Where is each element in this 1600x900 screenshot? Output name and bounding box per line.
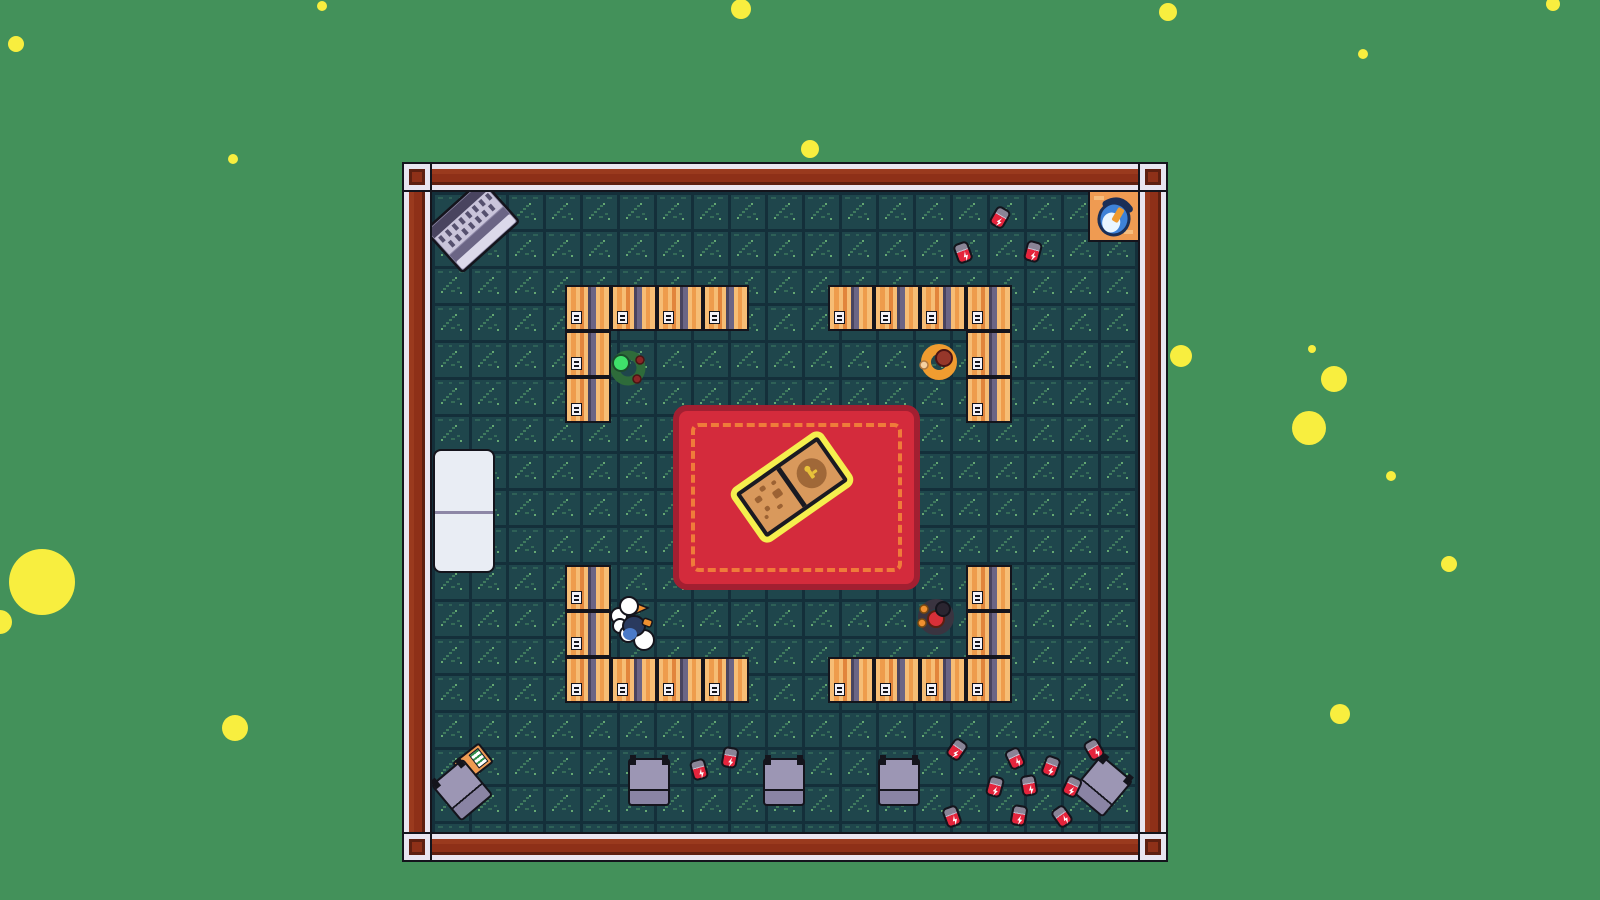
cabinet-divider: [435, 511, 493, 514]
corner-top-left: [402, 162, 432, 192]
white-cabinet[interactable]: [433, 449, 495, 573]
desk-drawer-handle: [571, 591, 582, 604]
desk-drawer-handle: [571, 403, 582, 416]
orange-creature-character[interactable]: [915, 336, 963, 388]
desk[interactable]: [565, 657, 611, 703]
shadow-creature-character[interactable]: [911, 590, 961, 644]
firefly-particle: [1159, 3, 1177, 21]
desk[interactable]: [966, 611, 1012, 657]
desk[interactable]: [703, 285, 749, 331]
desk[interactable]: [657, 285, 703, 331]
desk[interactable]: [966, 565, 1012, 611]
desk-drawer-handle: [709, 311, 720, 324]
corner-bottom-left: [402, 832, 432, 862]
chair[interactable]: [763, 758, 805, 806]
firefly-particle: [8, 36, 24, 52]
desk-drawer-handle: [617, 311, 628, 324]
desk-drawer-handle: [972, 357, 983, 370]
corner-bottom-right: [1138, 832, 1168, 862]
lightning-bolt-icon: [1046, 765, 1056, 777]
firefly-particle: [0, 610, 12, 634]
desk[interactable]: [920, 657, 966, 703]
firefly-particle: [317, 1, 327, 11]
desk[interactable]: [565, 285, 611, 331]
desk-drawer-handle: [571, 311, 582, 324]
desk[interactable]: [611, 657, 657, 703]
firefly-particle: [731, 0, 751, 19]
desk-drawer-handle: [972, 403, 983, 416]
firefly-particle: [1292, 411, 1326, 445]
firefly-particle: [222, 715, 248, 741]
desk-drawer-handle: [571, 637, 582, 650]
desk-drawer-handle: [880, 683, 891, 696]
desk-drawer-handle: [571, 357, 582, 370]
firefly-particle: [1330, 704, 1350, 724]
lightning-bolt-icon: [1092, 747, 1103, 759]
desk[interactable]: [966, 285, 1012, 331]
booklet-label: [469, 748, 489, 769]
desk-drawer-handle: [617, 683, 628, 696]
lightning-bolt-icon: [1029, 250, 1038, 261]
desk[interactable]: [565, 565, 611, 611]
desk[interactable]: [828, 285, 874, 331]
desk-drawer-handle: [663, 311, 674, 324]
desk-drawer-handle: [880, 311, 891, 324]
firefly-particle: [1308, 345, 1316, 353]
desk[interactable]: [966, 657, 1012, 703]
soda-can[interactable]: [1019, 774, 1038, 797]
desk-drawer-handle: [926, 683, 937, 696]
game-stage: [0, 0, 1600, 900]
desk[interactable]: [565, 611, 611, 657]
firefly-particle: [1321, 366, 1347, 392]
firefly-particle: [1441, 556, 1457, 572]
green-creature-character[interactable]: [604, 342, 652, 394]
firefly-particle: [801, 140, 819, 158]
desk[interactable]: [565, 377, 611, 423]
desk[interactable]: [657, 657, 703, 703]
desk-drawer-handle: [972, 311, 983, 324]
desk-drawer-handle: [663, 683, 674, 696]
wall-top: [432, 162, 1138, 192]
desk-drawer-handle: [709, 683, 720, 696]
lightning-bolt-icon: [961, 250, 971, 262]
lightning-bolt-icon: [991, 785, 1000, 796]
wall-right: [1138, 192, 1168, 832]
firefly-particle: [1386, 471, 1396, 481]
lightning-bolt-icon: [1066, 785, 1077, 797]
lightning-bolt-icon: [994, 216, 1005, 228]
desk[interactable]: [703, 657, 749, 703]
lightning-bolt-icon: [726, 757, 735, 768]
lightning-bolt-icon: [1060, 813, 1071, 825]
desk[interactable]: [828, 657, 874, 703]
desk[interactable]: [565, 331, 611, 377]
lightning-bolt-icon: [697, 768, 706, 779]
firefly-particle: [1170, 345, 1192, 367]
desk-drawer-handle: [834, 311, 845, 324]
desk-drawer-handle: [972, 591, 983, 604]
piano[interactable]: [425, 182, 525, 282]
desk-drawer-handle: [926, 311, 937, 324]
lightning-bolt-icon: [950, 814, 960, 826]
wall-bottom: [432, 832, 1138, 862]
desk[interactable]: [611, 285, 657, 331]
desk[interactable]: [874, 657, 920, 703]
desk-drawer-handle: [571, 683, 582, 696]
lightning-bolt-icon: [1013, 756, 1024, 768]
desk-drawer-handle: [834, 683, 845, 696]
chair[interactable]: [878, 758, 920, 806]
desk-drawer-handle: [972, 683, 983, 696]
wall-left: [402, 192, 432, 832]
goose-character[interactable]: [608, 594, 664, 654]
desk[interactable]: [966, 377, 1012, 423]
desk[interactable]: [874, 285, 920, 331]
desk-drawer-handle: [972, 637, 983, 650]
lightning-bolt-icon: [1027, 784, 1036, 795]
desk[interactable]: [966, 331, 1012, 377]
water-bucket-station[interactable]: [1088, 190, 1142, 244]
firefly-particle: [1546, 0, 1560, 11]
chair[interactable]: [628, 758, 670, 806]
spellbook[interactable]: [707, 412, 877, 562]
lightning-bolt-icon: [950, 748, 961, 760]
firefly-particle: [1358, 49, 1368, 59]
firefly-particle: [9, 549, 75, 615]
desk[interactable]: [920, 285, 966, 331]
firefly-particle: [228, 154, 238, 164]
corner-top-right: [1138, 162, 1168, 192]
lightning-bolt-icon: [1015, 815, 1024, 826]
